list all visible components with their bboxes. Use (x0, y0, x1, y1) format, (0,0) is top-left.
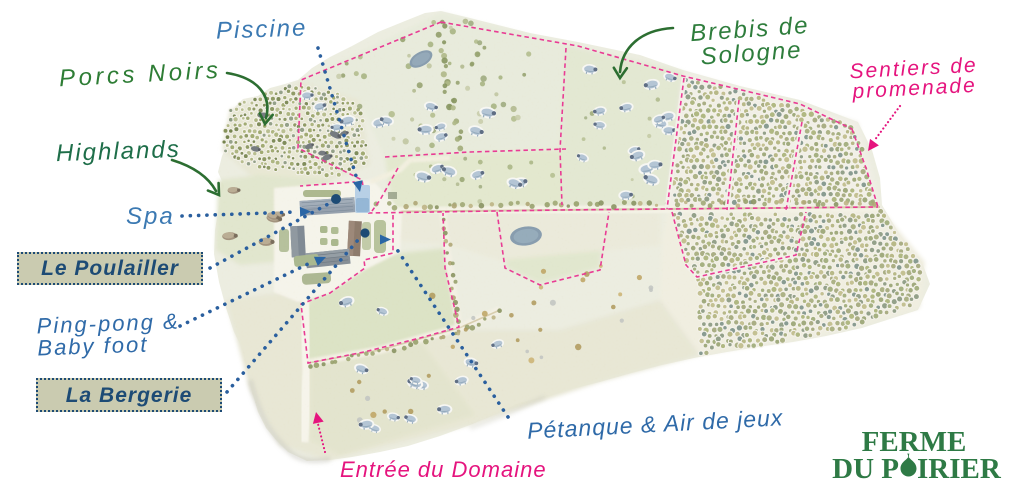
svg-text:IRIER: IRIER (917, 453, 1002, 485)
svg-text:DU P: DU P (832, 453, 899, 485)
